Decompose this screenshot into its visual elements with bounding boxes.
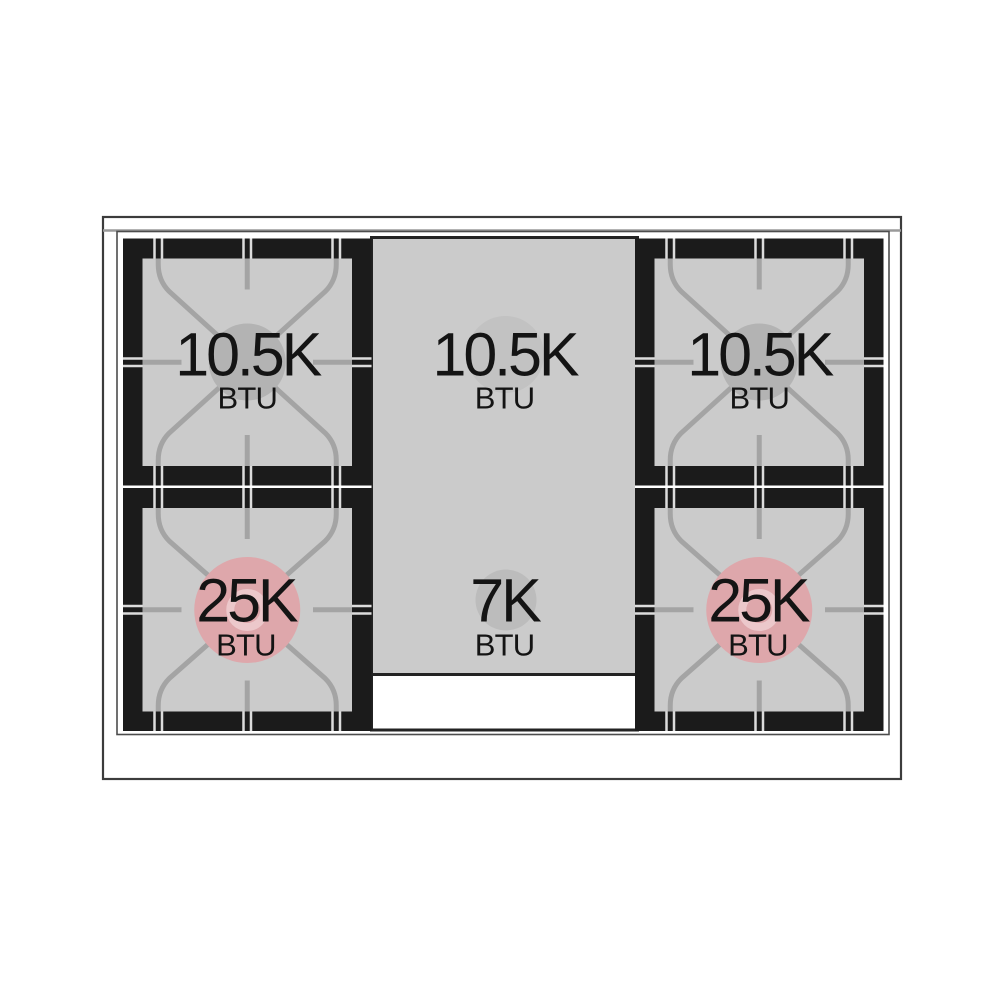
svg-text:BTU: BTU	[217, 381, 277, 416]
svg-text:25K: 25K	[196, 567, 298, 635]
svg-text:BTU: BTU	[216, 628, 276, 663]
svg-text:BTU: BTU	[729, 381, 789, 416]
svg-text:BTU: BTU	[475, 381, 535, 416]
svg-text:BTU: BTU	[728, 628, 788, 663]
svg-text:10.5K: 10.5K	[433, 321, 579, 389]
svg-text:10.5K: 10.5K	[687, 321, 833, 389]
svg-text:10.5K: 10.5K	[175, 321, 321, 389]
svg-text:25K: 25K	[708, 567, 810, 635]
svg-text:BTU: BTU	[475, 628, 535, 663]
svg-text:7K: 7K	[470, 567, 541, 635]
